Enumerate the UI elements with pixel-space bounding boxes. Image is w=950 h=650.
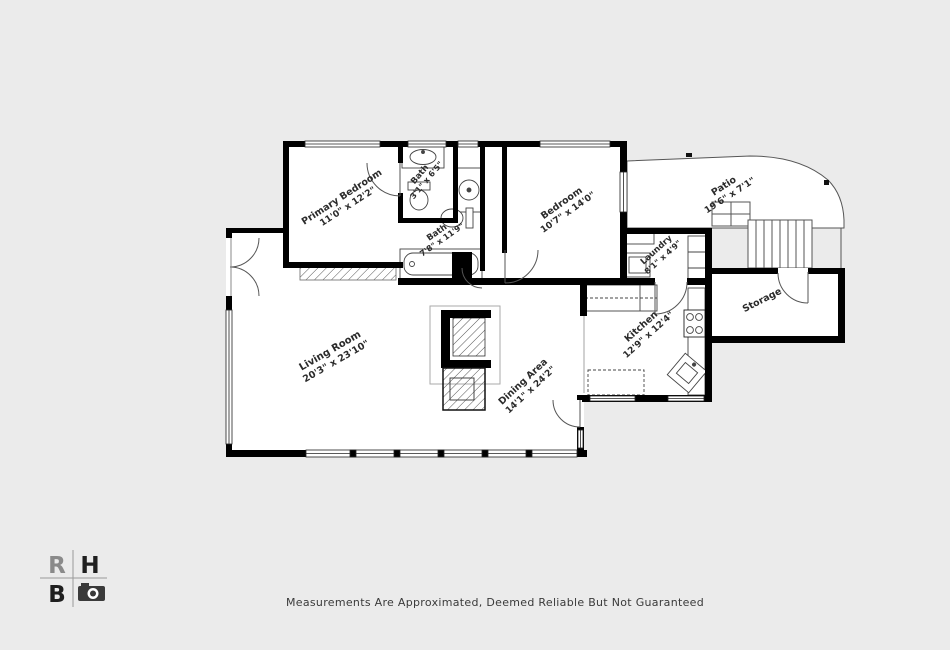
logo-letter-h: H xyxy=(80,553,99,579)
window xyxy=(226,310,232,444)
kitchen-counter-top xyxy=(585,285,657,311)
logo-letter-r: R xyxy=(48,553,66,579)
window xyxy=(590,396,635,401)
floor-plan: Primary Bedroom 11'0" x 12'2" Bath 3'1" … xyxy=(0,0,950,650)
bath-large-sink-icon xyxy=(456,168,482,212)
window xyxy=(305,141,380,147)
window xyxy=(408,141,446,147)
window xyxy=(668,396,704,401)
window-band xyxy=(306,450,577,457)
floor-plan-page: Primary Bedroom 11'0" x 12'2" Bath 3'1" … xyxy=(0,0,950,650)
window xyxy=(540,141,610,147)
logo-letter-b: B xyxy=(48,582,66,608)
stove-icon xyxy=(684,310,705,337)
disclaimer-text: Measurements Are Approximated, Deemed Re… xyxy=(286,596,704,609)
window xyxy=(620,172,627,212)
window xyxy=(578,430,583,448)
kitchen-cabinet-bottom xyxy=(588,370,644,395)
window xyxy=(458,141,478,147)
